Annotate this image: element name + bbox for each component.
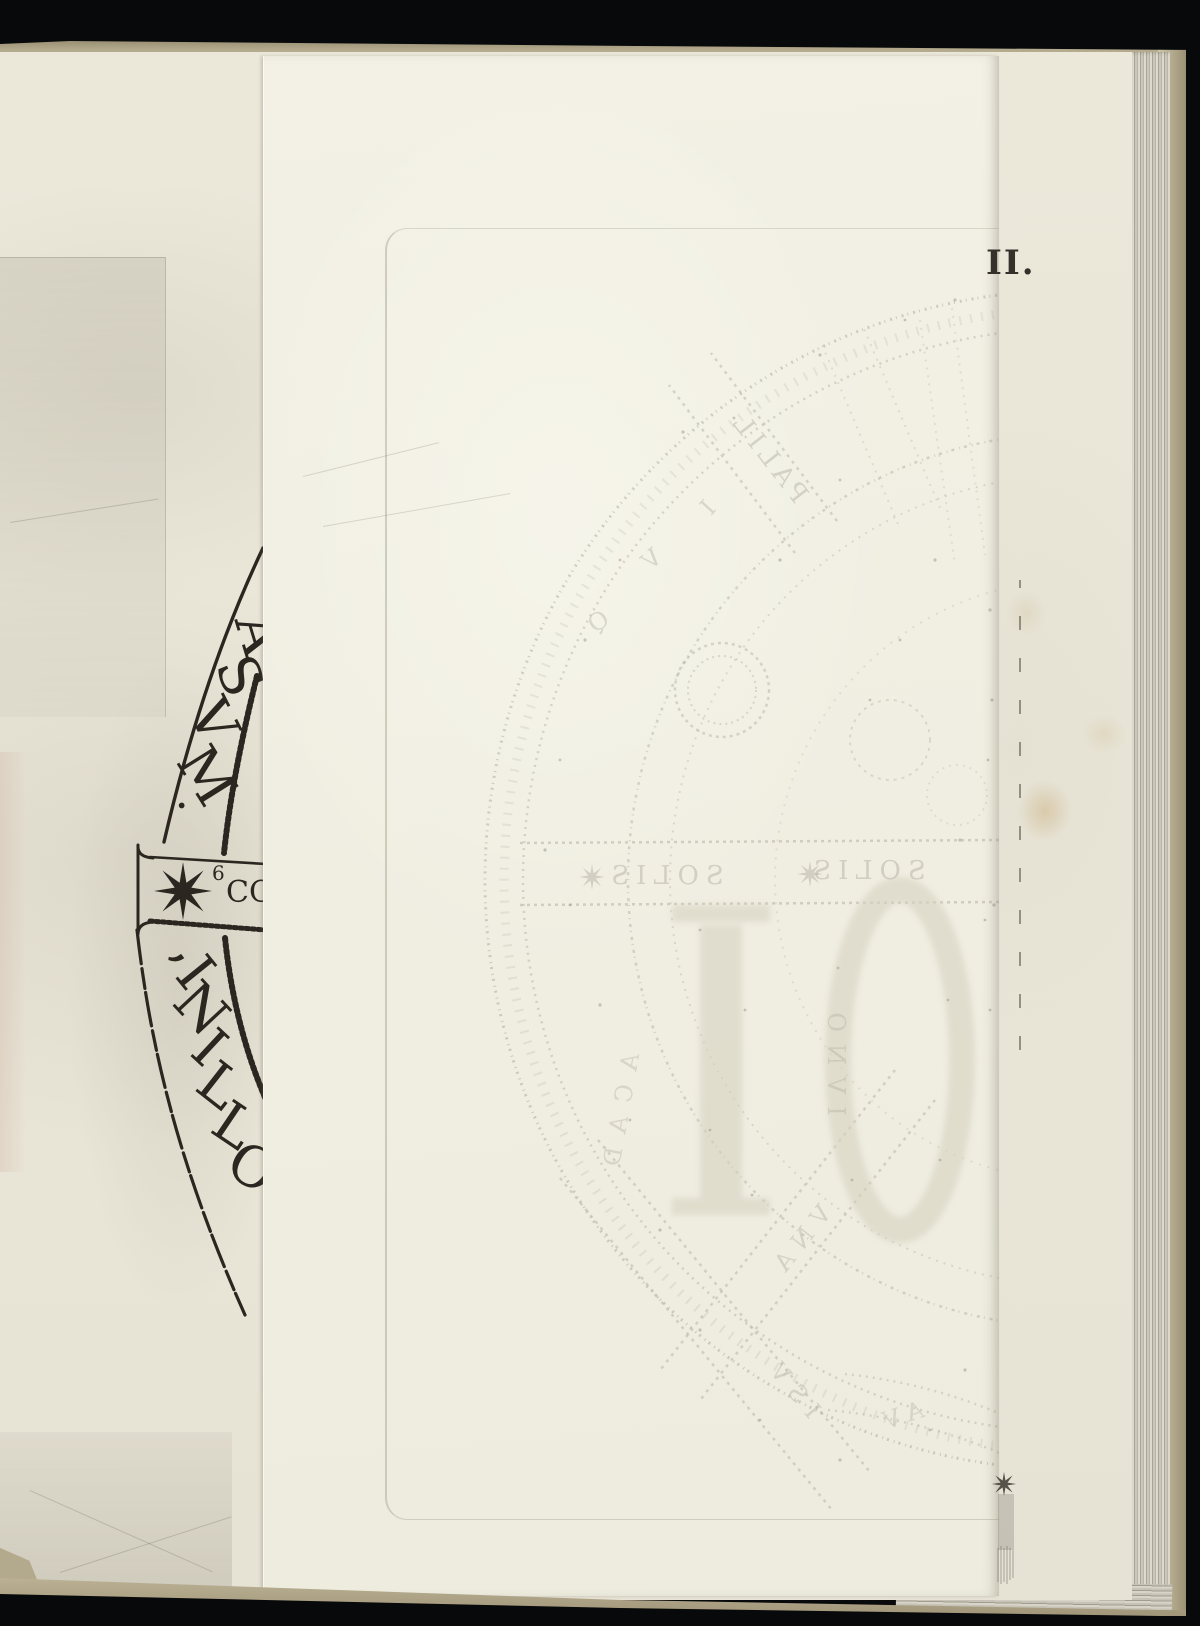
hatch-marks [998,1546,1013,1584]
setoff-medallion-c [927,765,987,825]
setoff-medallion-a-inner [688,656,756,724]
setoff-numeral-I-serif-bottom [672,1198,770,1215]
edge-star-mark [986,1460,1030,1600]
small-star-icon [992,1472,1016,1496]
setoff-text-arc-bottom: AV [872,1395,929,1437]
interleaf-sheet: PALIL SOLIS SOLIS IVNO VNA ISV AV ACAD Q… [263,56,999,1596]
setoff-spoke-top [920,308,985,565]
foxing-stain [1006,590,1046,636]
band-top-line [150,857,266,864]
ink-smudge [998,1494,1014,1550]
left-plate-engraving: O L L I N I , · M V S A 6 CO [0,470,266,1370]
eight-point-star-icon [154,862,212,920]
setoff-numeral-I-stem [700,925,742,1201]
plate-number: II. [986,246,1036,280]
setoff-numeral-O [838,890,962,1230]
foxing-stain [1082,714,1126,754]
fore-edge-page-stack [1126,52,1170,1614]
setoff-text-between: IVNO [822,1000,850,1116]
book-scan: O L L I N I , · M V S A 6 CO [0,0,1200,1626]
setoff-text-band-right: SOLIS [806,856,925,886]
setoff-spoke-upper2 [820,324,940,524]
band-label: CO [226,875,266,910]
arc-letter: A [221,604,266,663]
setoff-ring-letter: V [635,542,668,576]
setoff-medallion-b [850,700,930,780]
setoff-text-arc-left: ACAD [595,1050,645,1182]
band-numeral: 6 [212,861,225,885]
setoff-medallion-a [675,643,769,737]
setoff-diagram: PALIL SOLIS SOLIS IVNO VNA ISV AV ACAD Q… [263,56,999,1596]
foxing-stain [1018,780,1072,842]
setoff-large-numerals [672,890,962,1230]
setoff-ring-letter: I [694,495,721,521]
setoff-numeral-I-serif-top [672,905,770,922]
setoff-ring-letter: Q [582,604,614,638]
paper-crease [1019,580,1021,1050]
scan-backdrop-right [1186,0,1200,1626]
setoff-text-band-left: SOLIS [604,861,723,891]
plate-bottom-wash [0,1432,232,1597]
